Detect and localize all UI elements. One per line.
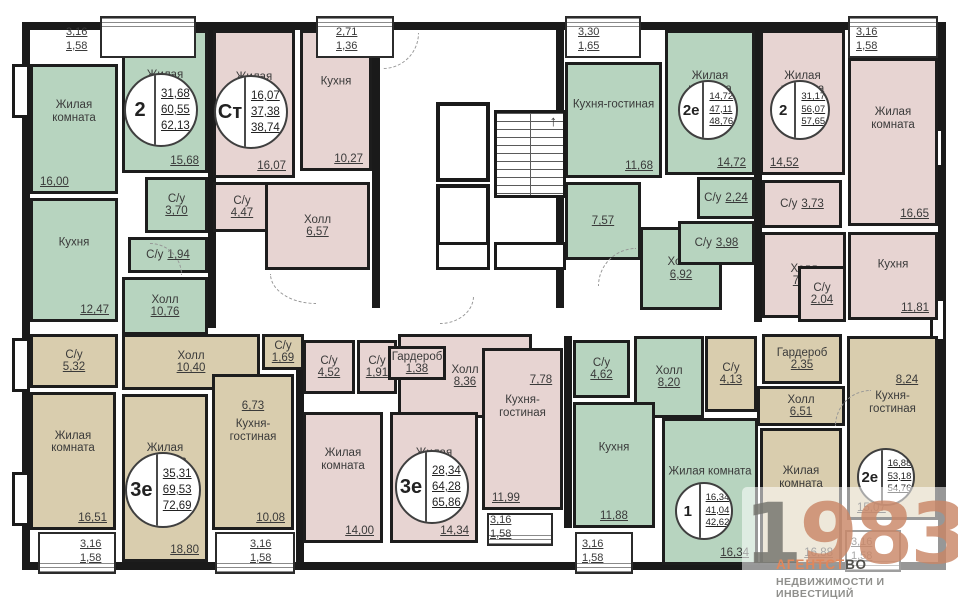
- room-label: С/у: [813, 282, 830, 295]
- apartment-area-value: 65,86: [432, 495, 467, 511]
- room-area-value: 18,80: [170, 544, 199, 556]
- apartment-type-badge: 2е14,7247,1148,76: [678, 80, 738, 140]
- room-label: С/у: [593, 357, 610, 370]
- room-living: Жилая комната16,51: [30, 392, 116, 530]
- room-hall: Холл6,57: [265, 182, 370, 270]
- facade-element: [12, 64, 30, 118]
- apartment-type-badge: 3е35,3169,5372,69: [125, 452, 201, 528]
- balcony-area-value: 1,65: [578, 40, 599, 54]
- apartment-area-value: 41,04: [706, 505, 731, 518]
- watermark-agency-name: АГЕНТСТВО: [776, 557, 867, 572]
- room-area-value: 6,73: [242, 400, 264, 412]
- balcony-area-value: 1,58: [490, 528, 511, 542]
- room-area-value: 14,34: [440, 525, 469, 537]
- room-kitchen: Кухня11,81: [848, 232, 938, 320]
- room-area-value: 8,24: [896, 374, 918, 386]
- balcony-area-label: 3,161,58: [582, 538, 603, 566]
- room-label: Жилая комната: [308, 447, 378, 473]
- room-area-value: 1,91: [366, 367, 388, 379]
- apartment-area-value: 16,88: [888, 458, 913, 471]
- room-area-value: 10,40: [177, 362, 206, 374]
- room-label: Холл: [304, 214, 331, 227]
- agency-name-part2: ВО: [845, 557, 867, 572]
- balcony-area-value: 3,16: [856, 26, 877, 40]
- room-bathroom: С/у3,70: [145, 177, 208, 233]
- room-label: Жилая комната: [35, 99, 113, 125]
- room-label: Холл: [451, 364, 478, 377]
- room-label: С/у: [722, 362, 739, 375]
- apartment-area-value: 38,74: [251, 120, 286, 136]
- room-bathroom: С/у4,47: [213, 182, 271, 232]
- room-label: Жилая комната: [667, 465, 753, 478]
- room-area-value: 3,73: [801, 198, 823, 210]
- room-label: Холл: [151, 294, 178, 307]
- room-area-value: 5,32: [63, 361, 85, 373]
- room-label: С/у: [780, 198, 797, 211]
- room-area-value: 8,36: [454, 376, 476, 388]
- room-label: С/у: [233, 195, 250, 208]
- room-area-value: 11,68: [625, 160, 653, 172]
- balcony-area-value: 1,58: [250, 552, 271, 566]
- room-label: Кухня-гостиная: [217, 418, 289, 444]
- room-area-value: 14,72: [717, 157, 746, 169]
- room-living: Жилая комната16,00: [30, 64, 118, 194]
- apartment-type-badge: 116,3441,0442,62: [675, 482, 733, 540]
- apartment-area-value: 62,13: [161, 118, 196, 134]
- room-bathroom: С/у2,24: [697, 177, 755, 219]
- room-label: С/у: [274, 340, 291, 353]
- apartment-area-value: 64,28: [432, 479, 467, 495]
- room-bathroom: С/у3,98: [678, 221, 755, 265]
- room-area-value: 16,51: [78, 512, 107, 524]
- room-bathroom: С/у4,52: [303, 340, 355, 394]
- room-label: Кухня: [305, 75, 367, 88]
- room-label: Холл: [787, 394, 814, 407]
- room-area-value: 8,20: [658, 377, 680, 389]
- apartment-type-badge: 3е28,3464,2865,86: [395, 450, 469, 524]
- room-label: Кухня-гостиная: [487, 394, 558, 420]
- balcony-area-value: 1,58: [856, 40, 877, 54]
- facade-element: [12, 338, 30, 392]
- room-area-value: 4,47: [231, 207, 253, 219]
- room-bathroom: С/у3,73: [762, 180, 842, 228]
- room-bathroom: С/у1,69: [262, 334, 304, 370]
- room-area-value: 4,62: [590, 369, 612, 381]
- room-label: С/у: [368, 355, 385, 368]
- room-area-value: 7,78: [530, 374, 552, 386]
- balcony-area-value: 2,71: [336, 26, 357, 40]
- apartment-area-value: 42,62: [706, 517, 731, 530]
- room-area-value: 7,57: [592, 215, 614, 227]
- room-label: С/у: [320, 355, 337, 368]
- room-label: Холл: [177, 350, 204, 363]
- room-label: Кухня-гостиная: [570, 98, 657, 111]
- room-hall: Холл10,76: [122, 277, 208, 335]
- balcony-area-label: 3,301,65: [578, 26, 599, 54]
- apartment-area-value: 37,38: [251, 104, 286, 120]
- room-label: Жилая комната: [853, 106, 933, 132]
- apartment-area-value: 72,69: [163, 498, 199, 514]
- room-bathroom: С/у2,04: [798, 266, 846, 322]
- apartment-area-value: 31,17: [801, 91, 828, 104]
- room-kitchen: Кухня11,88: [573, 402, 655, 528]
- room-area-value: 11,88: [576, 510, 652, 522]
- room-label: С/у: [704, 192, 721, 205]
- apartment-area-value: 35,31: [163, 466, 199, 482]
- agency-name-part1: АГЕНТСТ: [776, 557, 845, 572]
- staircase-divider: [530, 113, 531, 195]
- room-label: С/у: [168, 193, 185, 206]
- watermark-agency-tagline: НЕДВИЖИМОСТИ И ИНВЕСТИЦИЙ: [776, 576, 958, 600]
- room-label: Кухня: [35, 237, 113, 250]
- apartment-area-value: 53,18: [888, 471, 913, 484]
- room-area-value: 1,69: [272, 352, 294, 364]
- apartment-area-value: 69,53: [163, 482, 199, 498]
- balcony-area-value: 3,16: [66, 26, 87, 40]
- balcony: [565, 16, 641, 58]
- room-bathroom: С/у4,13: [705, 336, 757, 412]
- balcony-area-label: 3,161,58: [856, 26, 877, 54]
- room-area-value: 4,13: [720, 374, 742, 386]
- balcony: [100, 16, 196, 58]
- facade-element: [12, 472, 30, 526]
- elevator-shaft: [436, 102, 490, 182]
- room-area-value: 10,76: [151, 306, 180, 318]
- room-living: Жилая комната14,00: [303, 412, 383, 543]
- room-area-value: 4,52: [318, 367, 340, 379]
- room-zone-area: 8,24: [878, 370, 936, 390]
- apartment-area-value: 16,07: [251, 88, 286, 104]
- wall-segment: [372, 30, 380, 308]
- balcony-area-value: 1,58: [582, 552, 603, 566]
- balcony-area-label: 2,711,36: [336, 26, 357, 54]
- room-hall: Холл6,51: [757, 386, 845, 426]
- apartment-type-badge: 231,1756,0757,65: [770, 80, 830, 140]
- room-area-value: 1,38: [406, 363, 428, 375]
- room-label: Гардероб: [777, 347, 828, 360]
- room-label: С/у: [65, 349, 82, 362]
- apartment-type-badge: Ст16,0737,3838,74: [214, 75, 288, 149]
- apartment-area-value: 57,65: [801, 116, 828, 129]
- balcony-railing: [102, 18, 194, 27]
- room-kitchen-living: Кухня-гостиная11,68: [565, 62, 662, 178]
- apartment-area-value: 60,55: [161, 102, 196, 118]
- room-bathroom: С/у5,32: [30, 334, 118, 388]
- balcony-railing: [40, 563, 114, 572]
- room-label: Кухня: [853, 258, 933, 271]
- balcony-area-label: 3,161,58: [80, 538, 101, 566]
- apartment-area-value: 14,72: [709, 91, 736, 104]
- room-area-value: 3,98: [716, 237, 738, 249]
- balcony-area-value: 3,16: [250, 538, 271, 552]
- balcony-area-label: 3,161,58: [66, 26, 87, 54]
- service-duct: [494, 242, 566, 270]
- floor-plan: Жилая комната16,00Кухня12,47Жилая комнат…: [0, 0, 958, 600]
- room-label: Жилая комната: [35, 430, 111, 456]
- apartment-area-value: 48,76: [709, 116, 736, 129]
- room-area-value: 14,00: [345, 525, 374, 537]
- room-zone-area: 6,73: [216, 396, 290, 416]
- balcony: [38, 532, 116, 574]
- balcony-area-value: 3,30: [578, 26, 599, 40]
- apartment-type-badge: 231,6860,5562,13: [124, 73, 198, 147]
- balcony-area-label: 3,161,58: [250, 538, 271, 566]
- balcony-area-value: 3,16: [582, 538, 603, 552]
- balcony-area-value: 3,16: [490, 514, 511, 528]
- room-area-value: 6,51: [790, 406, 812, 418]
- room-label: Кухня: [578, 442, 650, 455]
- staircase-direction-arrow: ↑: [550, 114, 558, 129]
- balcony-area-value: 1,58: [80, 552, 101, 566]
- room-kitchen: Кухня12,47: [30, 198, 118, 322]
- room-area-value: 2,35: [791, 359, 813, 371]
- room-living: Жилая комната16,65: [848, 58, 938, 226]
- room-area-value: 14,52: [770, 157, 799, 169]
- apartment-area-value: 31,68: [161, 86, 196, 102]
- room-zone-area: 7,78: [518, 370, 564, 390]
- apartment-area-value: 28,34: [432, 463, 467, 479]
- room-area-value: 10,27: [334, 153, 363, 165]
- room-area-value: 15,68: [170, 155, 199, 167]
- room-area-value: 6,92: [670, 269, 692, 281]
- balcony-area-label: 3,161,58: [490, 514, 511, 542]
- service-duct: [436, 242, 490, 270]
- room-area-value: 10,08: [256, 512, 285, 524]
- room-area-value: 16,00: [40, 176, 69, 188]
- room-area-value: 6,57: [306, 226, 328, 238]
- wall-segment: [564, 336, 572, 528]
- room-label: С/у: [695, 237, 712, 250]
- room-area-value: 2,04: [811, 294, 833, 306]
- room-area-value: 2,24: [725, 192, 747, 204]
- room-area-value: 12,47: [80, 304, 109, 316]
- room-area-value: 16,07: [257, 160, 286, 172]
- room-area-value: 3,70: [165, 205, 187, 217]
- balcony-area-value: 1,36: [336, 40, 357, 54]
- apartment-area-value: 16,34: [706, 492, 731, 505]
- staircase: ↑: [494, 110, 566, 198]
- room-area-value: 11,99: [492, 492, 520, 504]
- room-wardrobe: Гардероб2,35: [762, 334, 842, 384]
- room-bathroom: С/у4,62: [573, 340, 630, 398]
- room-wardrobe: Гардероб1,38: [388, 346, 446, 380]
- room-area-value: 16,65: [900, 208, 929, 220]
- room-area-value: 11,81: [901, 302, 929, 314]
- room-label: Гардероб: [392, 351, 443, 364]
- apartment-area-value: 47,11: [709, 104, 736, 117]
- balcony-area-value: 1,58: [66, 40, 87, 54]
- balcony-area-value: 3,16: [80, 538, 101, 552]
- apartment-area-value: 56,07: [801, 104, 828, 117]
- room-label: Холл: [655, 365, 682, 378]
